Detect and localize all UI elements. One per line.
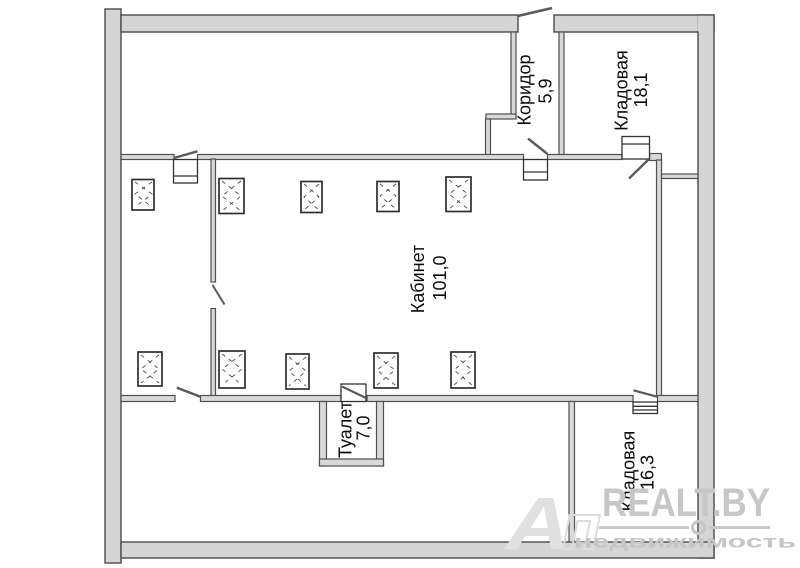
svg-text:Туалет: Туалет <box>336 401 356 458</box>
svg-text:18,1: 18,1 <box>631 72 651 107</box>
svg-text:REALT.BY: REALT.BY <box>602 481 770 525</box>
svg-text:5,9: 5,9 <box>536 78 556 103</box>
svg-text:Кладовая: Кладовая <box>612 50 632 131</box>
svg-text:Коридор: Коридор <box>515 54 535 125</box>
svg-text:п: п <box>562 491 601 563</box>
svg-text:7,0: 7,0 <box>354 415 374 440</box>
svg-text:недвижимость: недвижимость <box>574 532 796 552</box>
svg-text:Кабинет: Кабинет <box>408 245 428 313</box>
svg-text:А: А <box>504 483 570 565</box>
svg-text:101,0: 101,0 <box>430 255 450 300</box>
